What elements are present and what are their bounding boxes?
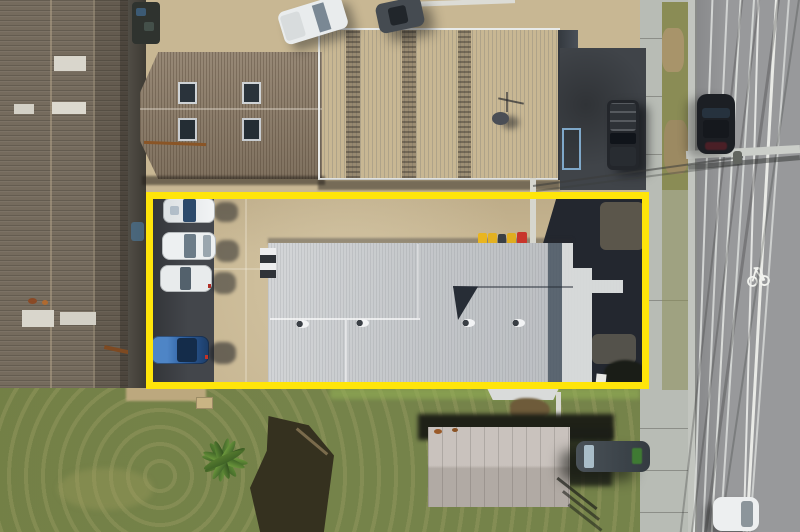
palm-frond xyxy=(202,447,243,472)
roof-repair-patch xyxy=(54,56,86,71)
parked-car-white-1 xyxy=(163,198,215,223)
tv-antenna xyxy=(498,97,524,104)
car-taillight xyxy=(208,284,211,288)
roof-ridge-line xyxy=(270,318,420,320)
weathered-strip xyxy=(346,30,360,178)
power-line-shadow xyxy=(686,0,763,532)
garden-bed xyxy=(250,416,334,532)
skylight xyxy=(242,118,261,141)
roof-dark-band xyxy=(548,243,562,388)
warehouse-bottom-shadow xyxy=(318,180,560,190)
footpath-joint xyxy=(640,428,690,429)
skylight xyxy=(178,118,197,141)
skylight xyxy=(242,82,261,104)
weathered-strip xyxy=(458,30,471,178)
rust-stain xyxy=(452,428,458,432)
car-windshield xyxy=(702,108,730,118)
roof-ridge-line xyxy=(93,0,95,388)
shed-shadow xyxy=(418,414,614,440)
white-ute-top xyxy=(276,0,349,46)
ladder-shadow xyxy=(562,490,600,521)
ladder-shadow xyxy=(556,477,597,510)
cottage-roof xyxy=(140,52,322,179)
car-window xyxy=(387,5,408,26)
roof-shaded-plane xyxy=(95,0,128,388)
palm-frond xyxy=(207,441,239,479)
tv-antenna xyxy=(506,92,508,112)
shed-shadow-right xyxy=(566,428,612,486)
crossarm-shadow xyxy=(688,155,800,170)
footpath-joint xyxy=(640,154,690,155)
power-line xyxy=(746,0,792,532)
footpath-joint xyxy=(640,512,690,513)
clutter-item xyxy=(136,8,146,16)
warehouse-east-wall xyxy=(558,30,578,180)
power-line xyxy=(742,0,761,532)
power-line-shadow xyxy=(676,0,747,532)
power-line-shadow xyxy=(714,0,800,532)
fallen-branches xyxy=(296,427,329,455)
roof-seam-line xyxy=(417,244,419,318)
roof-notch-shadow xyxy=(453,286,478,320)
concrete-joint xyxy=(150,268,270,270)
roof-repair-patch xyxy=(60,312,96,325)
box-trailer-frame xyxy=(562,128,581,170)
palm-frond xyxy=(210,439,239,481)
ute-bonnet xyxy=(610,147,636,166)
gray-car-top xyxy=(374,0,425,34)
service-wire xyxy=(533,156,743,187)
dirt-strip xyxy=(126,386,206,401)
ladder-shadow xyxy=(568,503,603,531)
roof-bright-section xyxy=(562,243,623,388)
kerb xyxy=(688,0,697,532)
building-shadow-zone xyxy=(540,196,646,388)
car-windshield xyxy=(184,234,196,258)
car-roof xyxy=(703,120,729,138)
roof-vent xyxy=(356,319,369,327)
footpath-joint xyxy=(640,300,690,301)
power-line xyxy=(700,0,729,532)
lawn xyxy=(0,386,700,532)
property-highlight-boundary xyxy=(146,192,649,389)
wheelie-bin-yellow xyxy=(488,233,497,244)
shed-roof xyxy=(428,427,570,507)
verge-dirt-patch xyxy=(662,28,684,72)
parking-asphalt xyxy=(150,196,214,388)
parked-car-blue xyxy=(151,336,209,364)
parked-car-white-2 xyxy=(162,232,216,260)
clutter-item xyxy=(144,22,154,31)
power-line xyxy=(717,0,756,532)
wheelie-bin-red xyxy=(517,232,527,244)
boundary-fence-top xyxy=(410,0,515,7)
rust-streak xyxy=(144,141,206,146)
roof-vent xyxy=(296,320,309,328)
lawn-bright-strip xyxy=(330,388,640,399)
car-rear xyxy=(705,142,727,150)
service-wire xyxy=(536,163,742,191)
downpipe-post xyxy=(556,392,561,426)
stained-concrete-patch xyxy=(592,334,636,364)
yard-clutter xyxy=(132,2,160,44)
road xyxy=(697,0,800,532)
palm-frond xyxy=(202,449,246,472)
palm-tree xyxy=(198,438,250,484)
white-sign xyxy=(595,374,606,387)
roof-vent xyxy=(512,319,525,327)
footpath-joint xyxy=(640,470,690,471)
fence-post xyxy=(530,178,536,246)
car-rear-glass xyxy=(203,235,211,257)
car-windshield xyxy=(183,199,196,222)
black-ute xyxy=(607,100,639,170)
footpath-joint xyxy=(640,38,690,39)
power-lines xyxy=(628,0,800,532)
suv-windshield xyxy=(584,445,594,468)
palm-frond xyxy=(202,453,249,467)
shrub-shadow xyxy=(604,360,646,386)
weathered-strip xyxy=(402,30,416,178)
parked-car-white-3 xyxy=(160,265,212,292)
white-car-road xyxy=(713,497,759,531)
roof-repair-patch xyxy=(22,310,54,327)
power-pole xyxy=(733,151,742,164)
ute-tray xyxy=(610,103,636,131)
roof-ridge-line xyxy=(50,0,52,388)
apartment-roof xyxy=(0,0,128,388)
bike-lane-line xyxy=(745,0,779,532)
power-pole-crossarm xyxy=(686,145,800,159)
wheelie-bin-yellow xyxy=(478,233,487,244)
suv xyxy=(576,441,650,472)
rust-stain xyxy=(434,429,442,434)
bicycle-road-marking-icon xyxy=(745,259,771,289)
main-building-roof xyxy=(268,243,623,388)
lot-concrete xyxy=(150,196,646,388)
car-window-band xyxy=(741,501,753,527)
satellite-dish xyxy=(492,112,509,125)
car-shadow xyxy=(210,342,236,364)
roof-vent xyxy=(462,319,475,327)
palm-frond xyxy=(211,440,232,480)
garden-debris xyxy=(510,398,550,420)
verge-grass-top xyxy=(662,2,688,190)
driveway xyxy=(128,0,146,388)
suv-roof-cargo xyxy=(632,448,642,464)
roof-repair-patch xyxy=(14,104,34,114)
rust-streak xyxy=(104,345,132,355)
rust-stain xyxy=(42,300,48,305)
ute-tray xyxy=(280,11,307,42)
palm-frond xyxy=(216,438,232,483)
roof-ridge-line xyxy=(140,108,322,110)
car-taillight xyxy=(205,355,208,359)
car-windshield xyxy=(180,267,191,290)
concrete-joint xyxy=(245,196,247,386)
roof-seam-line xyxy=(345,320,347,386)
roof-repair-patch xyxy=(52,102,86,114)
ute-windshield xyxy=(610,133,636,144)
loading-steps xyxy=(260,248,276,278)
gable-end-wall xyxy=(487,388,559,400)
power-line-shadow xyxy=(699,0,783,532)
wheelie-bin-dark xyxy=(498,234,506,244)
parked-car-glimpse xyxy=(131,222,144,241)
ute-window-band xyxy=(312,2,332,32)
car-shadow xyxy=(215,240,239,262)
power-line xyxy=(692,0,715,532)
stained-concrete-patch xyxy=(600,202,644,250)
aerial-photo xyxy=(0,0,800,532)
cottage-eave-shadow xyxy=(142,176,325,185)
roof-seam-shadow xyxy=(453,286,573,288)
palm-frond xyxy=(203,445,247,475)
car-windows xyxy=(177,338,197,362)
verge-grass-mid xyxy=(662,190,688,390)
wheelie-bin-yellow xyxy=(507,233,516,244)
lawn-dry-patch xyxy=(58,468,153,510)
power-line xyxy=(709,0,743,532)
warehouse-roof xyxy=(318,28,560,180)
footpath xyxy=(640,0,690,532)
car-shadow xyxy=(214,202,238,222)
car-shadow xyxy=(212,272,236,294)
footpath-joint xyxy=(640,96,690,97)
rust-stain xyxy=(28,298,37,304)
roof-gutter-edge xyxy=(120,0,128,388)
asphalt-yard xyxy=(560,48,646,190)
roof-top-shadow xyxy=(268,238,573,244)
utility-cover xyxy=(196,397,213,409)
skylight xyxy=(178,82,197,104)
car-sunroof xyxy=(170,206,179,215)
verge-dirt-patch xyxy=(664,120,688,174)
parked-car-road xyxy=(697,94,735,154)
